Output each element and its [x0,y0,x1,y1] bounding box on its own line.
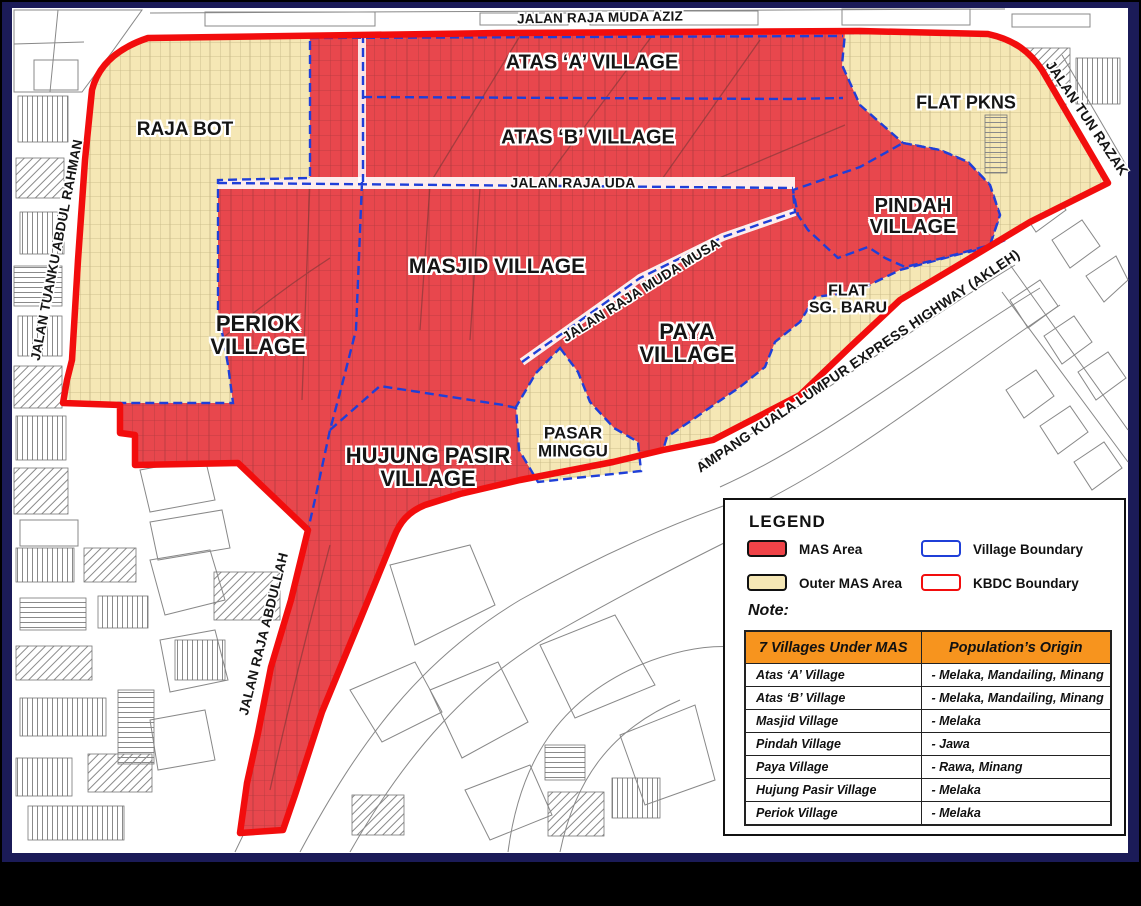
table-row: Atas ‘B’ Village - Melaka, Mandailing, M… [745,687,1111,710]
table-cell-origin: - Melaka, Mandailing, Minang [921,664,1111,687]
table-cell-origin: - Melaka [921,710,1111,733]
legend-label-kbdc-boundary: KBDC Boundary [973,576,1079,591]
table-cell-village: Periok Village [745,802,921,826]
table-cell-origin: - Melaka [921,779,1111,802]
legend-label-outer-mas-area: Outer MAS Area [799,576,902,591]
table-header-row: 7 Villages Under MAS Population’s Origin [745,631,1111,664]
legend-swatch-mas-area [747,540,787,557]
table-row: Pindah Village - Jawa [745,733,1111,756]
table-row: Masjid Village - Melaka [745,710,1111,733]
table-header-villages: 7 Villages Under MAS [745,631,921,664]
legend-label-village-boundary: Village Boundary [973,542,1083,557]
legend-swatch-kbdc-boundary [921,574,961,591]
table-cell-village: Atas ‘B’ Village [745,687,921,710]
legend-panel: LEGEND MAS Area Outer MAS Area Village B… [723,498,1126,836]
table-cell-village: Atas ‘A’ Village [745,664,921,687]
table-row: Hujung Pasir Village - Melaka [745,779,1111,802]
legend-label-mas-area: MAS Area [799,542,862,557]
table-cell-origin: - Jawa [921,733,1111,756]
table-row: Atas ‘A’ Village - Melaka, Mandailing, M… [745,664,1111,687]
table-cell-origin: - Melaka [921,802,1111,826]
table-cell-village: Pindah Village [745,733,921,756]
legend-swatch-village-boundary [921,540,961,557]
table-row: Periok Village - Melaka [745,802,1111,826]
table-cell-village: Hujung Pasir Village [745,779,921,802]
table-cell-village: Masjid Village [745,710,921,733]
map-canvas: JALAN RAJA MUDA AZIZ JALAN TUANKU ABDUL … [0,0,1141,906]
legend-swatch-outer-mas-area [747,574,787,591]
table-cell-village: Paya Village [745,756,921,779]
table-cell-origin: - Rawa, Minang [921,756,1111,779]
table-cell-origin: - Melaka, Mandailing, Minang [921,687,1111,710]
legend-note-label: Note: [748,602,789,620]
table-row: Paya Village - Rawa, Minang [745,756,1111,779]
legend-title: LEGEND [749,512,826,532]
villages-origin-table: 7 Villages Under MAS Population’s Origin… [744,630,1112,826]
table-header-origin: Population’s Origin [921,631,1111,664]
